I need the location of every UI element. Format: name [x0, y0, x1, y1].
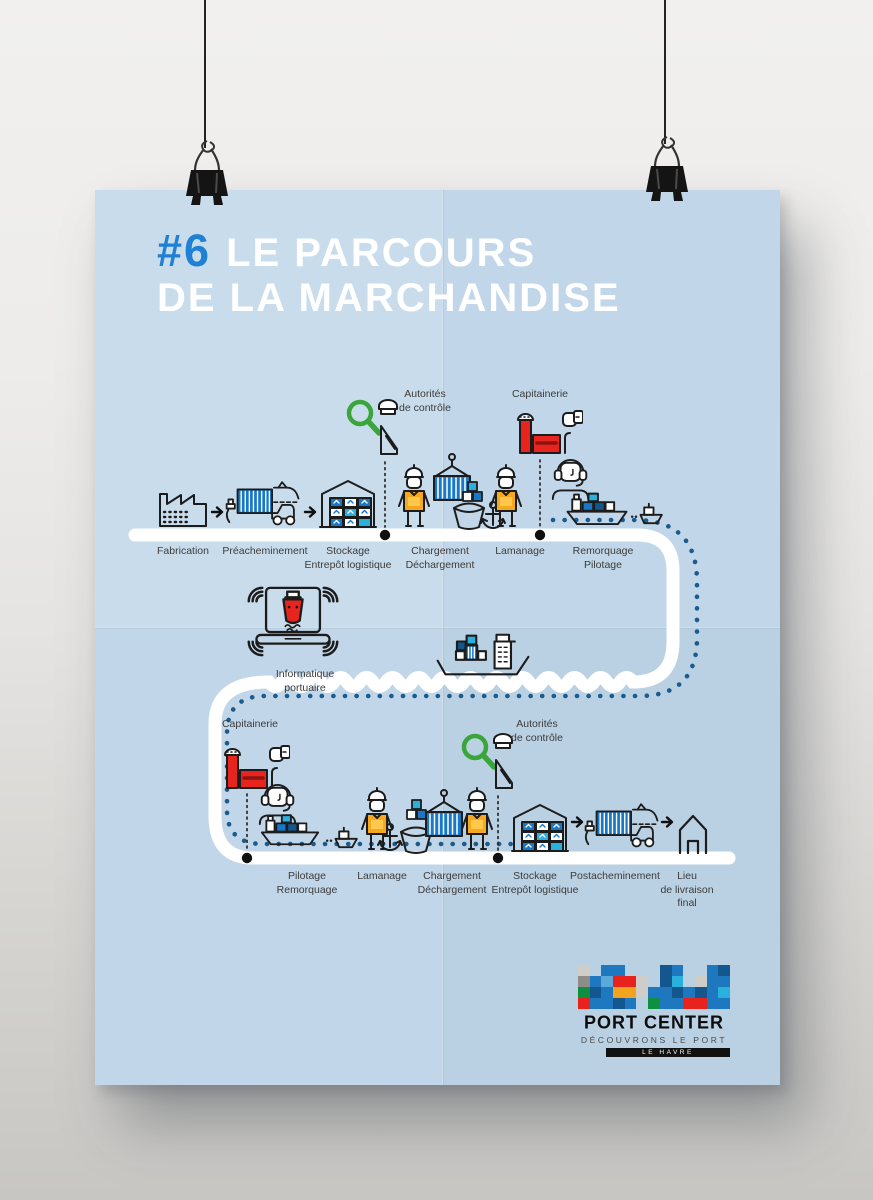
waypoint-dot	[242, 853, 252, 863]
tugboat-icon	[325, 824, 359, 850]
step-label-remorquage-pilotage: Remorquage Pilotage	[548, 545, 658, 572]
tugboat-icon	[630, 500, 664, 526]
flow-arrow	[662, 818, 672, 827]
factory-icon	[155, 484, 211, 528]
callout-label-autorites-bottom: Autorités de contrôle	[482, 718, 592, 745]
logo-name: PORT CENTER	[578, 1011, 730, 1033]
flow-arrow	[212, 508, 222, 517]
flow-arrow	[305, 508, 315, 517]
dock-worker-icon	[458, 784, 496, 852]
binder-clip-icon	[644, 136, 690, 202]
callout-label-autorites-top: Autorités de contrôle	[370, 388, 480, 415]
waypoint-dot	[535, 530, 545, 540]
callout-label-capitainerie-bottom: Capitainerie	[195, 718, 305, 732]
flow-arrow	[572, 818, 582, 827]
hanging-string-left	[204, 0, 206, 148]
logo-city-bar: LE HAVRE	[606, 1048, 730, 1057]
truck-train-container-icon	[223, 480, 303, 528]
anchor-icon	[479, 500, 507, 532]
step-label-lieu-livraison: Lieu de livraison final	[632, 870, 742, 911]
port-center-logo: PORT CENTER DÉCOUVRONS LE PORT LE HAVRE	[578, 965, 730, 1057]
waypoint-dot	[380, 530, 390, 540]
cargo-ship-icon	[260, 807, 320, 847]
logo-tagline: DÉCOUVRONS LE PORT	[578, 1035, 730, 1045]
binder-clip-icon	[184, 140, 230, 206]
callout-label-capitainerie-top: Capitainerie	[485, 388, 595, 402]
infographic-poster: #6LE PARCOURS DE LA MARCHANDISE	[95, 190, 780, 1085]
hanging-string-right	[664, 0, 666, 144]
cargo-ship-icon	[565, 486, 629, 526]
label-informatique-portuaire: Informatique portuaire	[250, 668, 360, 695]
container-ship-icon	[433, 628, 533, 682]
warehouse-icon	[510, 801, 570, 853]
logo-mosaic	[578, 965, 730, 1009]
warehouse-icon	[318, 477, 378, 529]
waypoint-dot	[493, 853, 503, 863]
harbor-master-tower-icon	[515, 405, 583, 457]
port-it-laptop-icon	[243, 582, 343, 661]
house-icon	[675, 811, 711, 855]
truck-train-container-icon	[582, 802, 662, 850]
